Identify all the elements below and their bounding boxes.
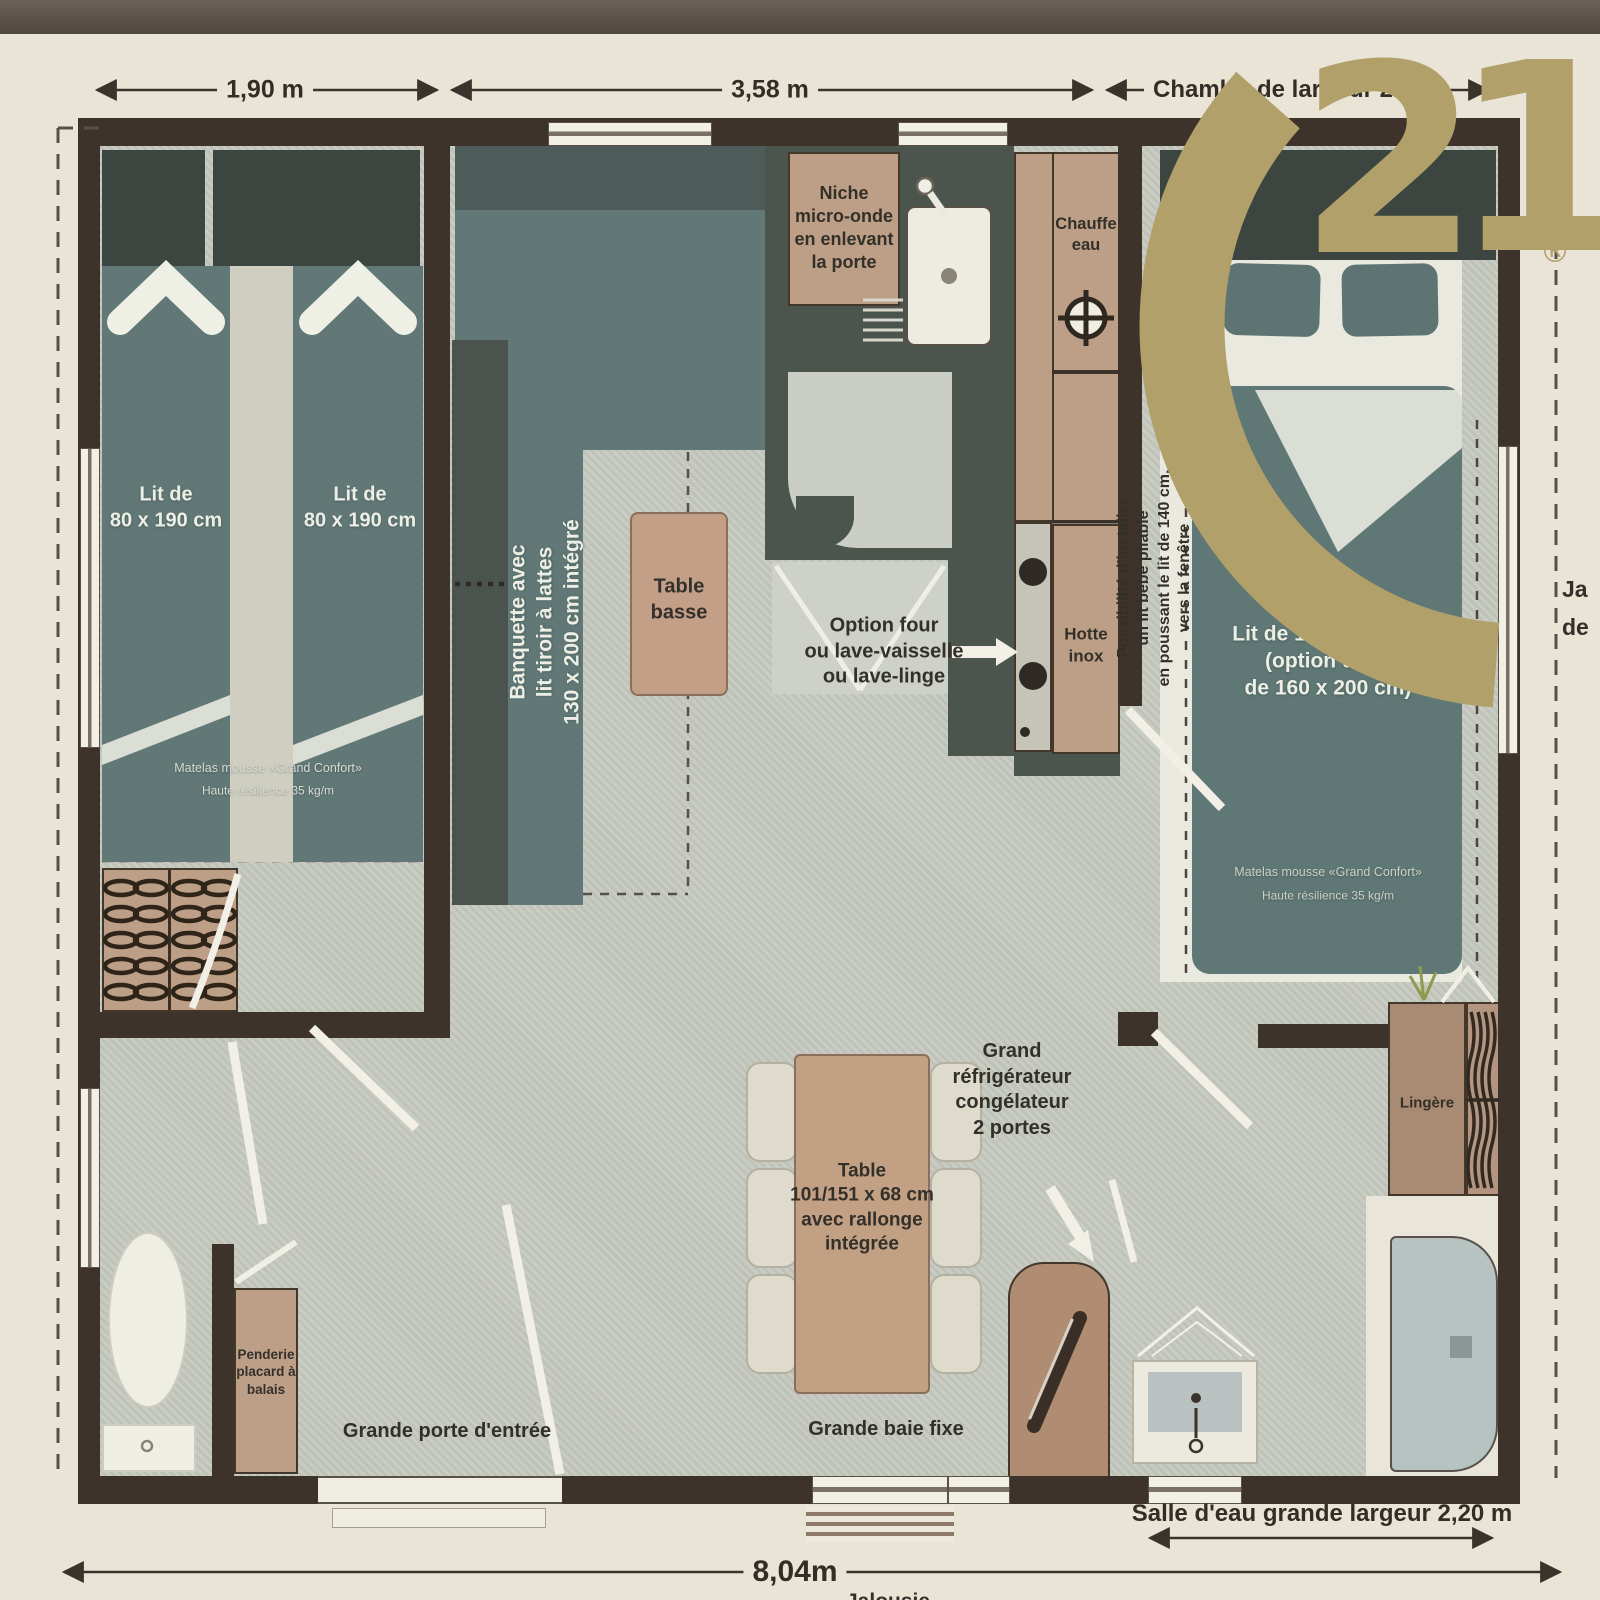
c21-seal: 2 1 ®: [1182, 7, 1600, 665]
c21-numeral-1: 1: [1452, 7, 1600, 312]
century21-logo: 2 1 ®: [0, 0, 1600, 1600]
floorplan-photo: { "brand": { "numeral_2": "2", "numeral_…: [0, 0, 1600, 1600]
c21-registered: ®: [1540, 235, 1570, 270]
